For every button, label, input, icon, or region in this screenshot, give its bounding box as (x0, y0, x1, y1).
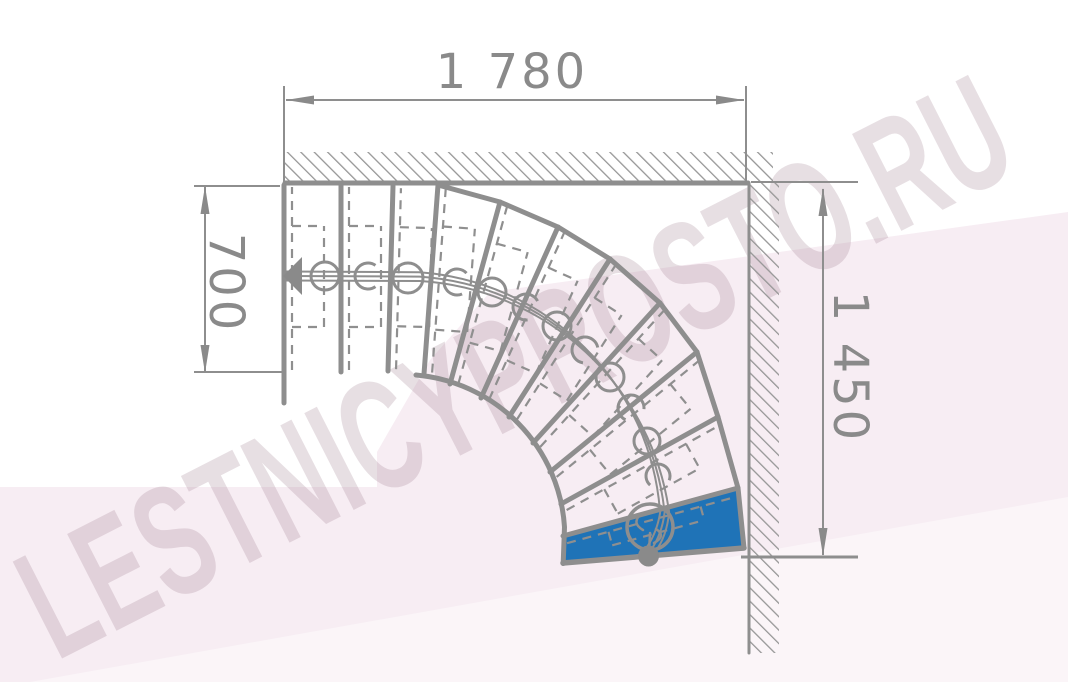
stair-edge-line (438, 185, 500, 202)
dim-arrow-left-down (201, 345, 210, 373)
dim-arrow-left-up (201, 186, 210, 214)
walkline-start-dot (638, 546, 659, 567)
tread-overlap-dashes (443, 226, 475, 228)
stair-plan-drawing: LESTNICYPROSTO.RU 1 780 700 1 450 (0, 0, 1068, 682)
dimension-label-left: 700 (198, 233, 254, 334)
stair-edge-line (500, 202, 558, 227)
wall-right-hatch (749, 183, 779, 653)
walkline-circle (393, 263, 423, 293)
wall-top-hatch (285, 152, 773, 183)
dim-arrow-top-left (286, 96, 314, 105)
stair-plan-canvas: LESTNICYPROSTO.RU 1 780 700 1 450 (0, 0, 1068, 682)
dimension-label-right: 1 450 (822, 291, 878, 443)
dim-arrow-top-right (716, 96, 744, 105)
tread-overlap-dashes (497, 244, 528, 252)
tread-overlap-dashes (400, 227, 432, 228)
dimension-label-top: 1 780 (436, 44, 588, 100)
